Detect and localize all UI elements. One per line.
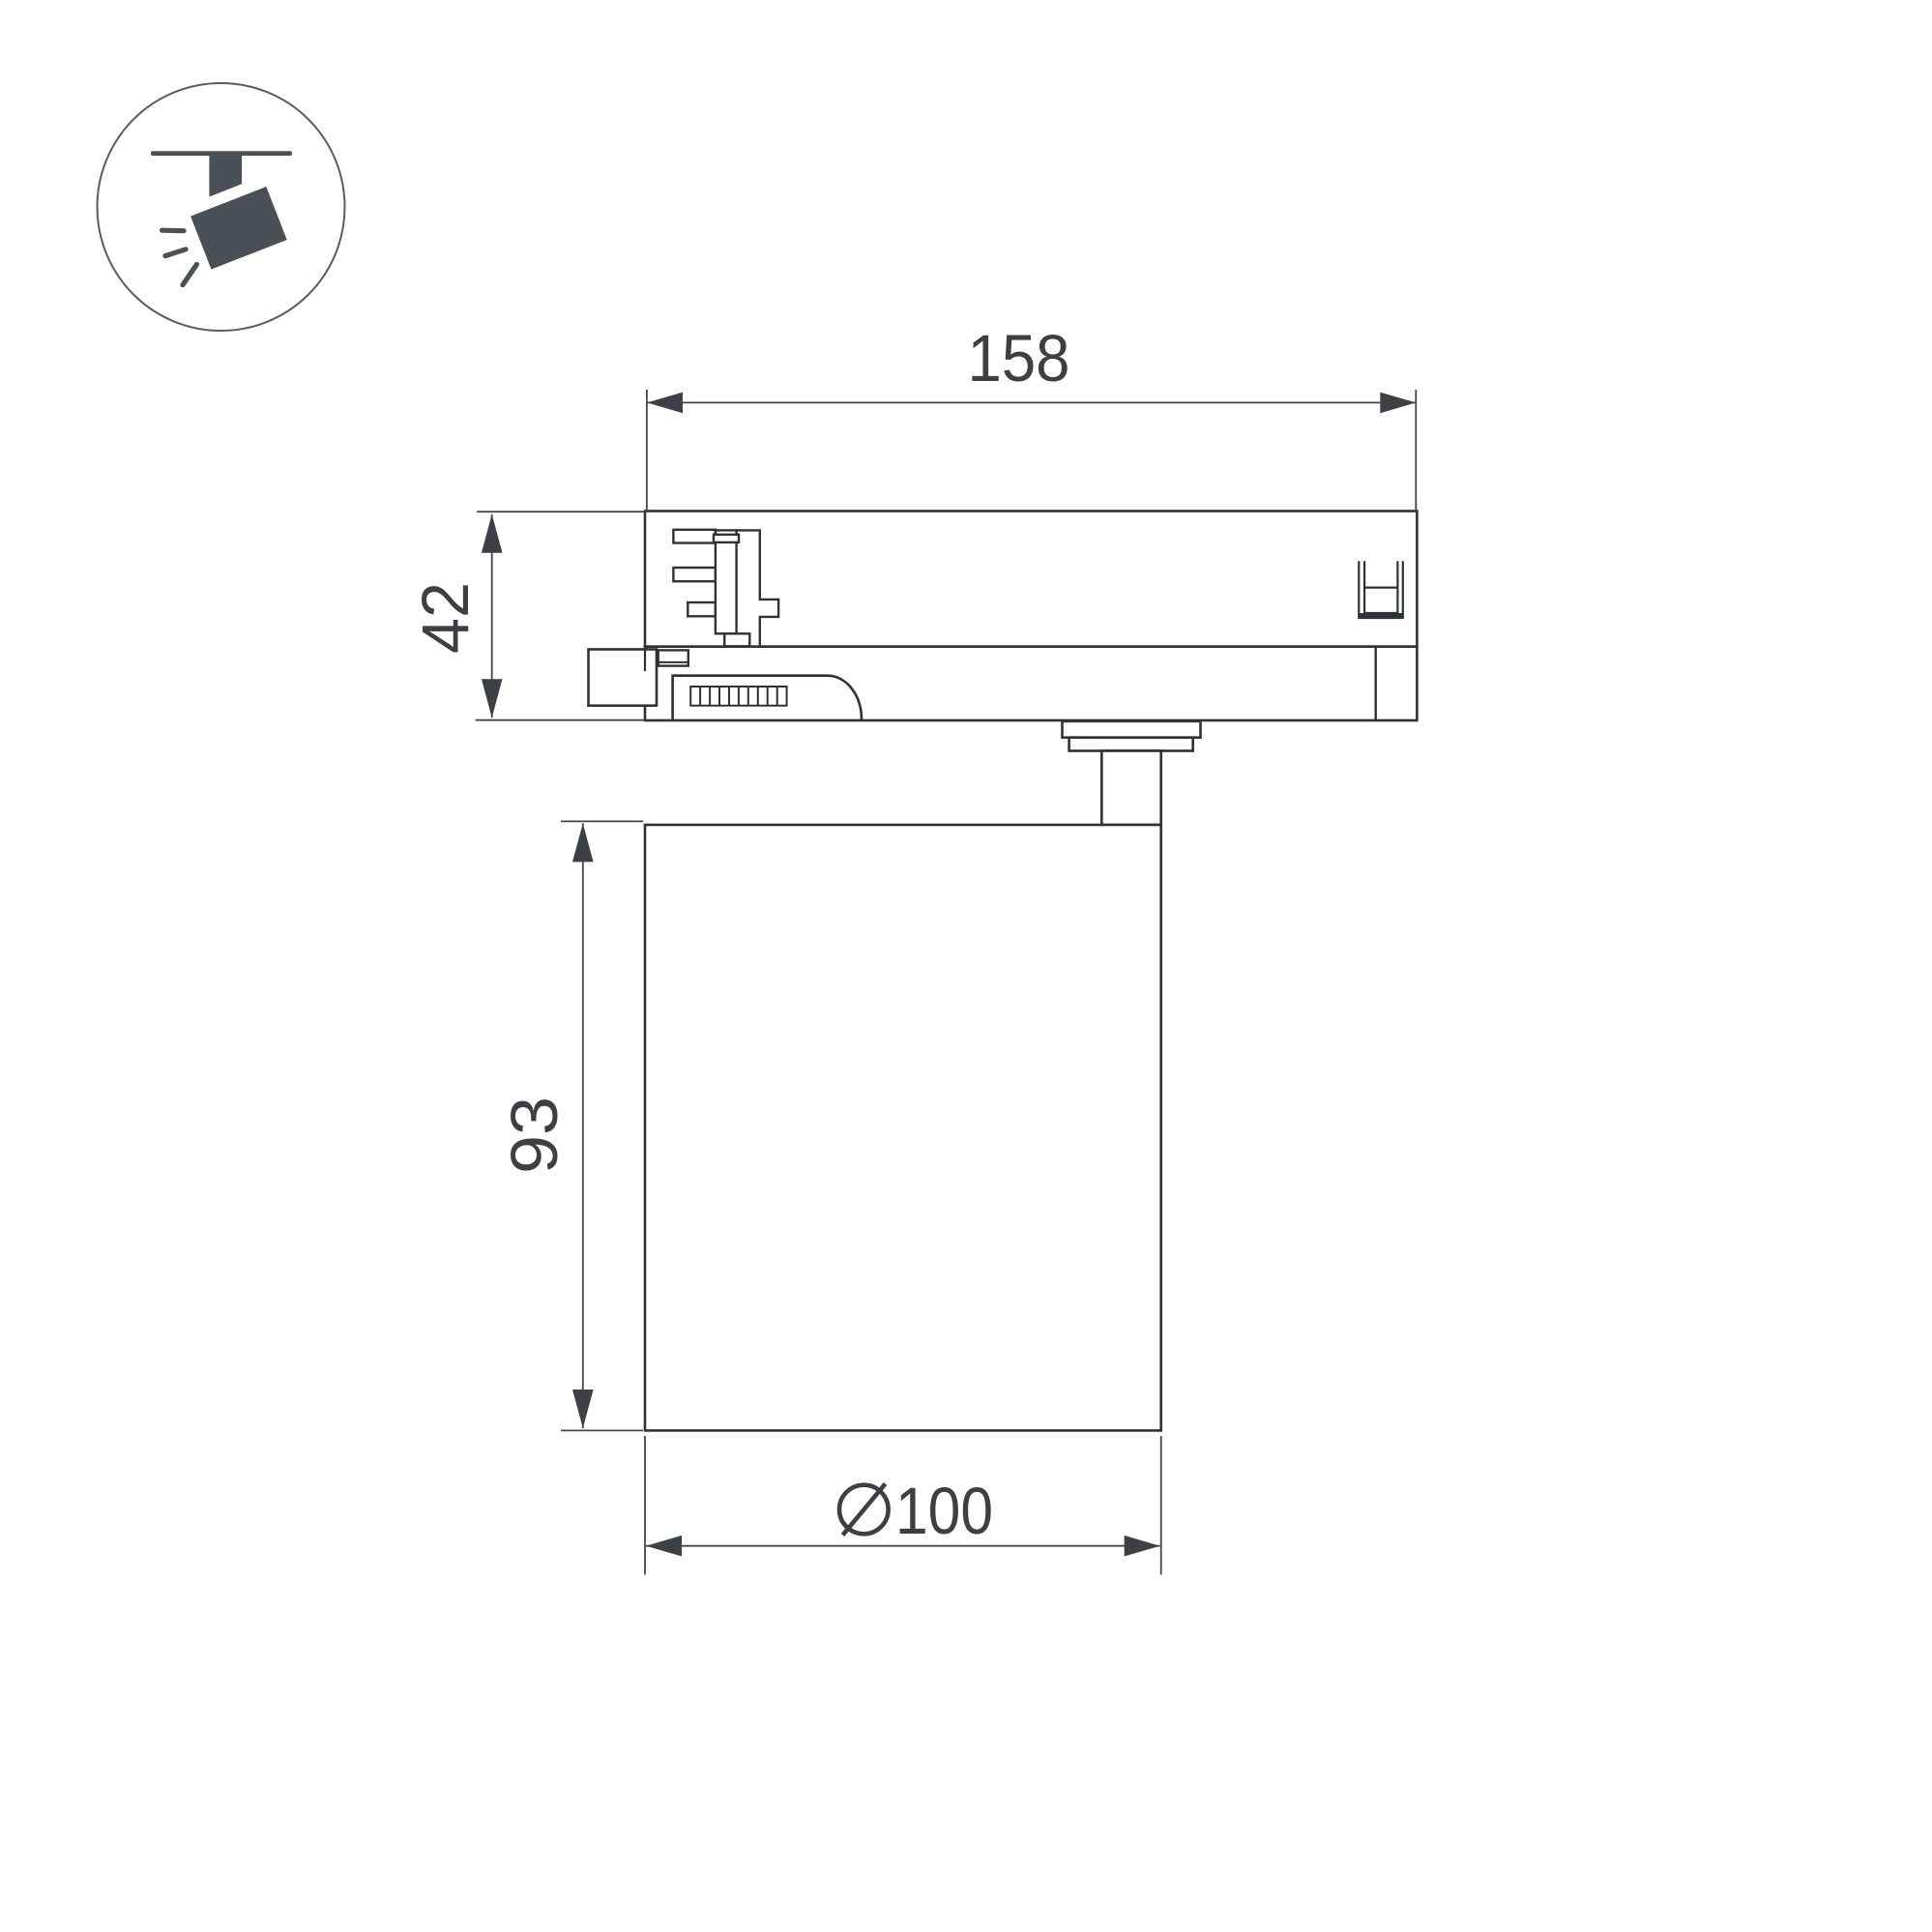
svg-text:100: 100	[895, 1474, 993, 1548]
svg-text:93: 93	[497, 1097, 571, 1174]
svg-text:158: 158	[968, 321, 1070, 395]
svg-text:42: 42	[408, 582, 483, 654]
